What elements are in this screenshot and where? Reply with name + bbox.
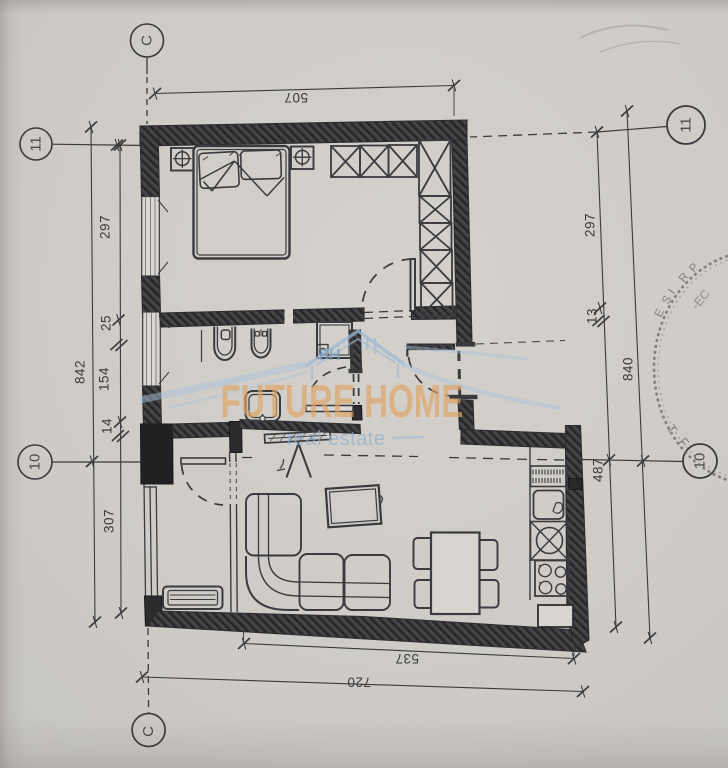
svg-text:840: 840 (621, 357, 636, 381)
svg-text:25: 25 (99, 315, 114, 331)
svg-text:14: 14 (100, 418, 115, 434)
svg-text:537: 537 (395, 651, 419, 666)
svg-text:154: 154 (97, 367, 112, 391)
svg-text:11: 11 (678, 117, 695, 133)
svg-text:FH: FH (319, 347, 340, 364)
svg-text:297: 297 (98, 215, 113, 239)
svg-text:842: 842 (73, 360, 88, 384)
svg-text:10: 10 (27, 454, 44, 471)
svg-text:720: 720 (347, 675, 371, 690)
svg-text:real estate: real estate (287, 428, 386, 450)
svg-text:FUTURE HOME: FUTURE HOME (221, 375, 464, 427)
svg-text:C: C (140, 726, 157, 737)
svg-text:507: 507 (284, 90, 308, 105)
svg-text:487: 487 (591, 458, 606, 482)
svg-text:11: 11 (28, 136, 45, 152)
svg-text:C: C (139, 35, 156, 46)
svg-text:13: 13 (585, 308, 600, 324)
svg-text:297: 297 (583, 213, 598, 237)
svg-text:307: 307 (102, 509, 117, 533)
